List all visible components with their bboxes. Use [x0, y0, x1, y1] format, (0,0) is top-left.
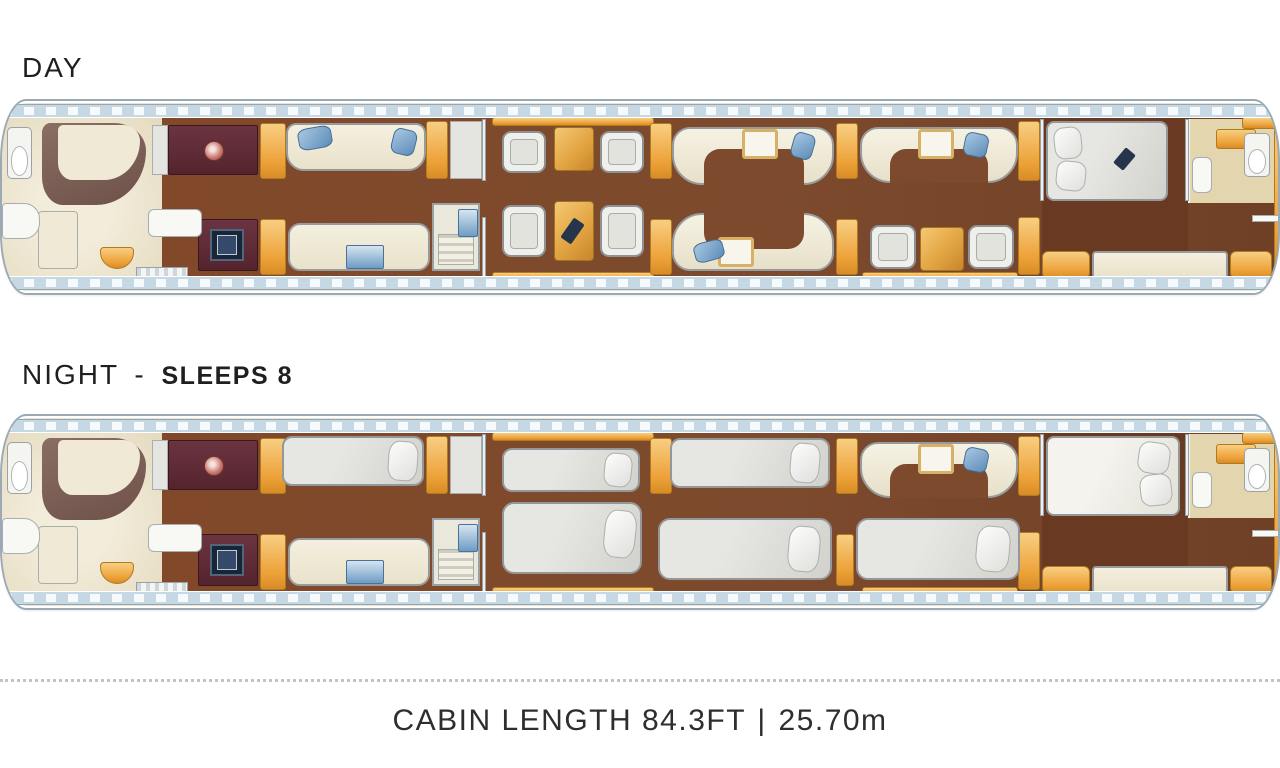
partition-wall-fwd-top — [482, 434, 486, 496]
entry-cabinet — [38, 211, 78, 269]
mid-berth-top-pillow — [788, 442, 821, 484]
fwd-bulkhead-cabinet-top — [260, 123, 286, 179]
night-floorplan — [0, 414, 1280, 610]
dotted-divider — [0, 679, 1280, 682]
mid-cabinet-top — [650, 438, 672, 494]
master-pillow-1 — [1052, 126, 1083, 161]
galley-oven-screen — [210, 544, 244, 576]
partition-wall-fwd-bottom — [482, 532, 486, 594]
aft-credenza-aft — [1230, 251, 1272, 279]
master-pillow-2 — [1055, 160, 1088, 193]
mid-cabinet-top — [650, 123, 672, 179]
sidewall-monitor — [458, 524, 478, 552]
bedroom-wall — [1040, 434, 1044, 516]
cockpit-console — [2, 203, 40, 239]
lounge-cabinet-top — [426, 436, 448, 494]
window-band-top — [2, 104, 1278, 118]
aft-cabinet-top — [836, 123, 858, 179]
fwd-bulkhead-cabinet-bottom — [260, 219, 286, 275]
bedroom-bulkhead-cabinet-bottom — [1018, 217, 1040, 275]
aft-cabinet-bottom — [836, 219, 858, 275]
window-band-bottom — [2, 276, 1278, 290]
window-band-top — [2, 419, 1278, 433]
night-config-label: NIGHT - SLEEPS 8 — [22, 359, 293, 391]
mid-berth-bottom-pillow — [786, 525, 822, 574]
night-label-detail: SLEEPS 8 — [162, 362, 294, 390]
aft-sofa-table — [918, 129, 954, 159]
fwd-bulkhead-cabinet-bottom — [260, 534, 286, 590]
club-berth-top-pillow — [602, 452, 633, 489]
day-floorplan — [0, 99, 1280, 295]
galley-sink — [204, 141, 224, 161]
lav-toilet — [1244, 133, 1270, 177]
forward-lav-toilet — [7, 442, 32, 494]
forward-berth-pillow — [387, 440, 420, 482]
aft-sofa-table — [918, 444, 954, 474]
bedroom-bulkhead-cabinet-bottom — [1018, 532, 1040, 590]
tail-cabinet — [1274, 434, 1280, 594]
cabin-length-separator: | — [757, 704, 766, 737]
aft-credenza-aft — [1230, 566, 1272, 594]
club-seat-aft-top — [600, 131, 644, 173]
aft-credenza-fwd — [1042, 251, 1090, 279]
aft-chair-aft — [968, 225, 1014, 269]
club-wall-trim-top — [492, 117, 654, 126]
aft-credenza — [1092, 251, 1228, 279]
cabin-length-caption: CABIN LENGTH 84.3FT | 25.70m — [0, 704, 1280, 738]
aft-berth-pillow — [974, 525, 1012, 574]
lav-toilet — [1244, 448, 1270, 492]
night-label-main: NIGHT — [22, 359, 119, 390]
lav-sink — [1192, 157, 1212, 193]
master-pillow-2 — [1138, 472, 1173, 507]
window-band-bottom — [2, 591, 1278, 605]
credenza-fax — [346, 245, 384, 269]
tail-cabinet — [1274, 119, 1280, 279]
bedroom-bulkhead-cabinet-top — [1018, 121, 1040, 181]
bedroom-bulkhead-cabinet-top — [1018, 436, 1040, 496]
entry-side-table — [148, 209, 202, 237]
aft-chair-fwd — [870, 225, 916, 269]
partition-wall-fwd-bottom — [482, 217, 486, 279]
sidewall-monitor — [458, 209, 478, 237]
aft-table — [920, 227, 964, 271]
aft-credenza-fwd — [1042, 566, 1090, 594]
partition-wall-fwd-top — [482, 119, 486, 181]
galley-sink — [204, 456, 224, 476]
master-pillow-1 — [1136, 440, 1172, 476]
lav-towel — [1252, 215, 1280, 222]
cabin-floorplan-page: DAY NIGHT - SLEEPS 8 CABIN LENGTH 84.3FT… — [0, 0, 1280, 768]
club-seat-fwd-bottom — [502, 205, 546, 257]
club-seat-aft-bottom — [600, 205, 644, 257]
galley-gray-panel — [152, 125, 168, 175]
lav-towel — [1252, 530, 1280, 537]
night-label-separator: - — [134, 359, 145, 390]
forward-closet — [450, 121, 482, 179]
day-config-label: DAY — [22, 52, 84, 84]
lounge-cabinet-top — [426, 121, 448, 179]
lav-wall — [1185, 119, 1189, 201]
galley-oven-screen — [210, 229, 244, 261]
bedroom-wall — [1040, 119, 1044, 201]
mid-cabinet-bottom — [650, 219, 672, 275]
aft-credenza — [1092, 566, 1228, 594]
cabin-length-feet: 84.3FT — [642, 704, 746, 737]
credenza-fax — [346, 560, 384, 584]
club-table-top — [554, 127, 594, 171]
aft-cabinet-bottom — [836, 534, 854, 586]
cockpit-console — [2, 518, 40, 554]
lav-wall — [1185, 434, 1189, 516]
aft-cabinet-top — [836, 438, 858, 494]
forward-lav-toilet — [7, 127, 32, 179]
club-wall-trim-top — [492, 432, 654, 441]
cabin-length-prefix: CABIN LENGTH — [392, 704, 632, 737]
conference-table-top — [742, 129, 778, 159]
club-seat-fwd-top — [502, 131, 546, 173]
cabin-length-meters: 25.70m — [778, 704, 887, 737]
entry-cabinet — [38, 526, 78, 584]
lav-sink — [1192, 472, 1212, 508]
galley-gray-panel — [152, 440, 168, 490]
entry-side-table — [148, 524, 202, 552]
forward-closet — [450, 436, 482, 494]
